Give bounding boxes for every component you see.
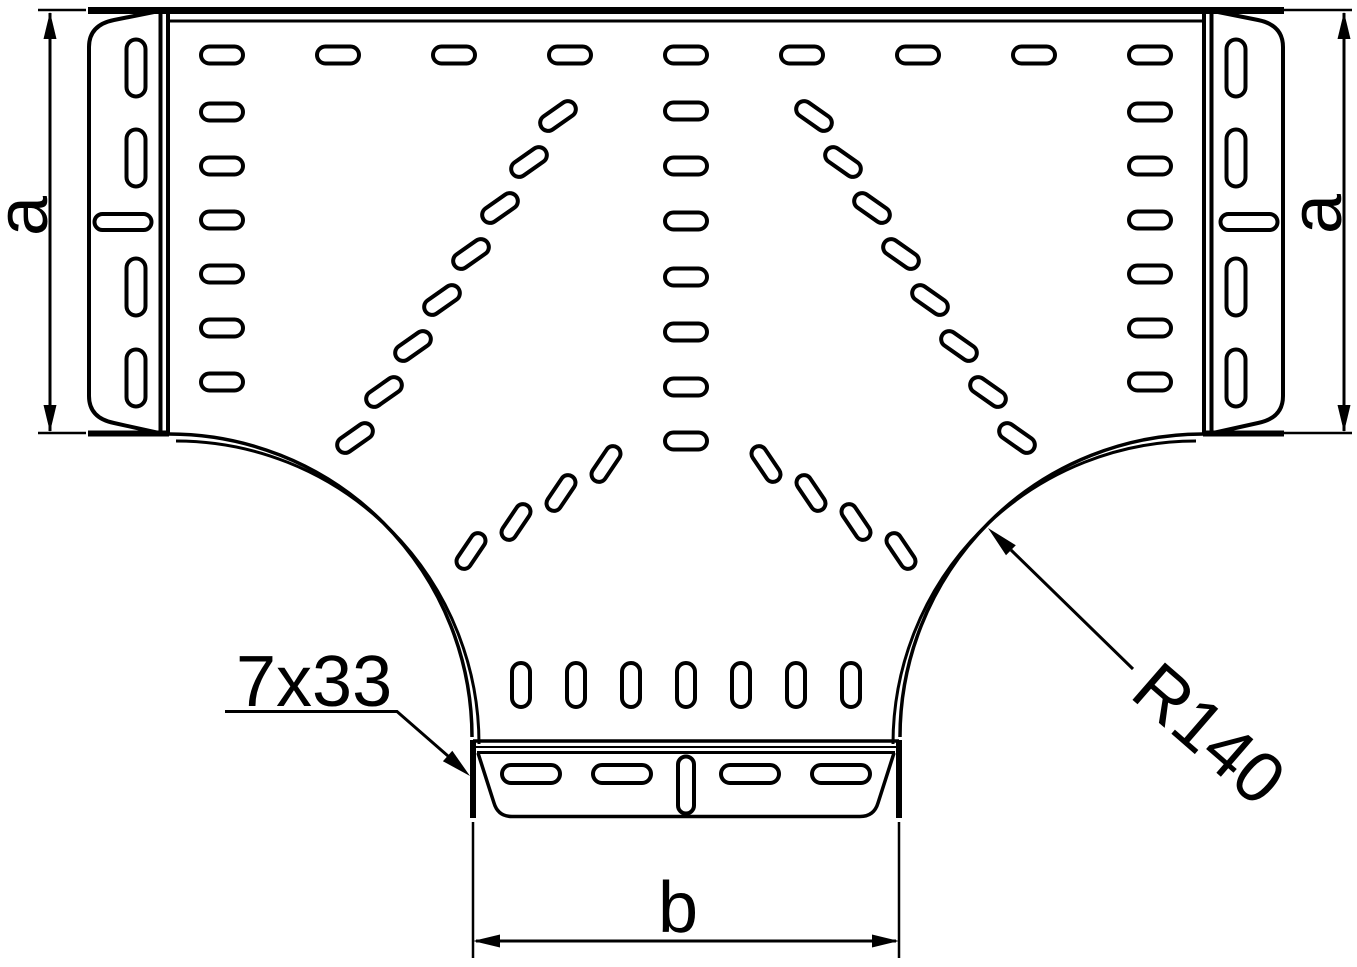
branch-bottom-row-slot [622, 663, 640, 707]
branch-bottom-row-slot [732, 663, 750, 707]
top-row-slot [549, 47, 591, 64]
right-plate-vertical-slot [1227, 40, 1246, 97]
fan-upper-right-slot [851, 190, 893, 226]
fan-lower-right-slot [749, 443, 784, 485]
fan-lower-right-slot [884, 530, 919, 572]
b-arrow-left-icon [473, 935, 500, 948]
dim-a-right-label: a [1277, 193, 1357, 234]
left-column-slot [201, 212, 243, 229]
top-row-slot [781, 47, 823, 64]
top-row-slot [897, 47, 939, 64]
center-column-slot [665, 379, 707, 396]
left-column-slot [201, 104, 243, 121]
fan-lower-left-slot [544, 472, 579, 514]
right-column-slot [1129, 374, 1171, 391]
fan-upper-left-slot [537, 98, 579, 134]
center-column-slot [665, 433, 707, 450]
fan-upper-right-slot [938, 328, 980, 364]
a-right-arrow-up-icon [1338, 12, 1351, 39]
right-column-slot [1129, 158, 1171, 175]
fan-upper-left-slot [392, 328, 434, 364]
center-column-slot [665, 269, 707, 286]
fan-upper-left-slot [479, 190, 521, 226]
a-right-arrow-down-icon [1338, 405, 1351, 432]
fan-upper-left-slot [421, 282, 463, 318]
fan-lower-left-slot [589, 443, 624, 485]
right-column-slot [1129, 266, 1171, 283]
fan-upper-right-slot [793, 98, 835, 134]
bottom-flange-horizontal-slot [502, 765, 560, 783]
fan-upper-right-slot [822, 144, 864, 180]
left-plate-horizontal-slot [95, 214, 152, 230]
fan-lower-left-slot [454, 530, 489, 572]
fan-upper-left-slot [363, 374, 405, 410]
right-plate-vertical-slot [1227, 130, 1246, 187]
left-plate-vertical-slot [127, 259, 146, 316]
bottom-flange-vertical-slot [678, 757, 694, 814]
right-column-slot [1129, 320, 1171, 337]
fan-lower-left-slot [499, 501, 534, 543]
left-column-slot [201, 320, 243, 337]
center-column-slot [665, 158, 707, 175]
left-column-slot [201, 374, 243, 391]
fan-upper-right-slot [880, 236, 922, 272]
fan-upper-right-slot [909, 282, 951, 318]
a-left-arrow-up-icon [44, 12, 57, 39]
left-plate-vertical-slot [127, 350, 146, 407]
right-plate-vertical-slot [1227, 350, 1246, 407]
fan-upper-right-slot [996, 420, 1038, 456]
left-column-slot [201, 266, 243, 283]
left-plate-vertical-slot [127, 40, 146, 97]
slot-size-label: 7x33 [236, 642, 392, 722]
bottom-flange-horizontal-slot [593, 765, 651, 783]
technical-drawing-canvas: a a b 7x33 R140 [0, 0, 1357, 967]
dim-b-label: b [658, 868, 698, 948]
a-left-arrow-down-icon [44, 405, 57, 432]
slot-size-callout: 7x33 [225, 642, 470, 776]
left-column-slot [201, 158, 243, 175]
dimension-a-right: a [1277, 10, 1357, 433]
top-row-slot [1129, 47, 1171, 64]
fan-lower-right-slot [794, 472, 829, 514]
right-plate-horizontal-slot [1221, 214, 1278, 230]
dimension-a-left: a [0, 10, 86, 433]
branch-bottom-row-slot [567, 663, 585, 707]
branch-bottom-row-slot [512, 663, 530, 707]
top-row-slot [433, 47, 475, 64]
radius-leader [1011, 550, 1133, 669]
center-column-slot [665, 213, 707, 230]
branch-bottom-row-slot [787, 663, 805, 707]
fan-upper-left-slot [450, 236, 492, 272]
fan-upper-left-slot [334, 420, 376, 456]
dimension-b: b [473, 822, 899, 958]
branch-bottom-row-slot [677, 663, 695, 707]
fan-upper-right-slot [967, 374, 1009, 410]
top-row-slot [1013, 47, 1055, 64]
center-column-slot [665, 324, 707, 341]
top-row-slot [317, 47, 359, 64]
right-column-slot [1129, 212, 1171, 229]
cable-tray-tee-drawing: a a b 7x33 R140 [0, 0, 1357, 967]
fan-lower-right-slot [839, 501, 874, 543]
b-arrow-right-icon [872, 935, 899, 948]
dim-a-left-label: a [0, 195, 63, 236]
right-plate-vertical-slot [1227, 259, 1246, 316]
fan-upper-left-slot [508, 144, 550, 180]
branch-bottom-row-slot [842, 663, 860, 707]
top-row-slot [665, 47, 707, 64]
right-column-slot [1129, 104, 1171, 121]
top-row-slot [201, 47, 243, 64]
center-column-slot [665, 103, 707, 120]
radius-label: R140 [1118, 648, 1300, 821]
bottom-flange-horizontal-slot [721, 765, 779, 783]
bottom-flange-horizontal-slot [812, 765, 870, 783]
radius-callout: R140 [988, 528, 1300, 821]
left-plate-vertical-slot [127, 130, 146, 187]
